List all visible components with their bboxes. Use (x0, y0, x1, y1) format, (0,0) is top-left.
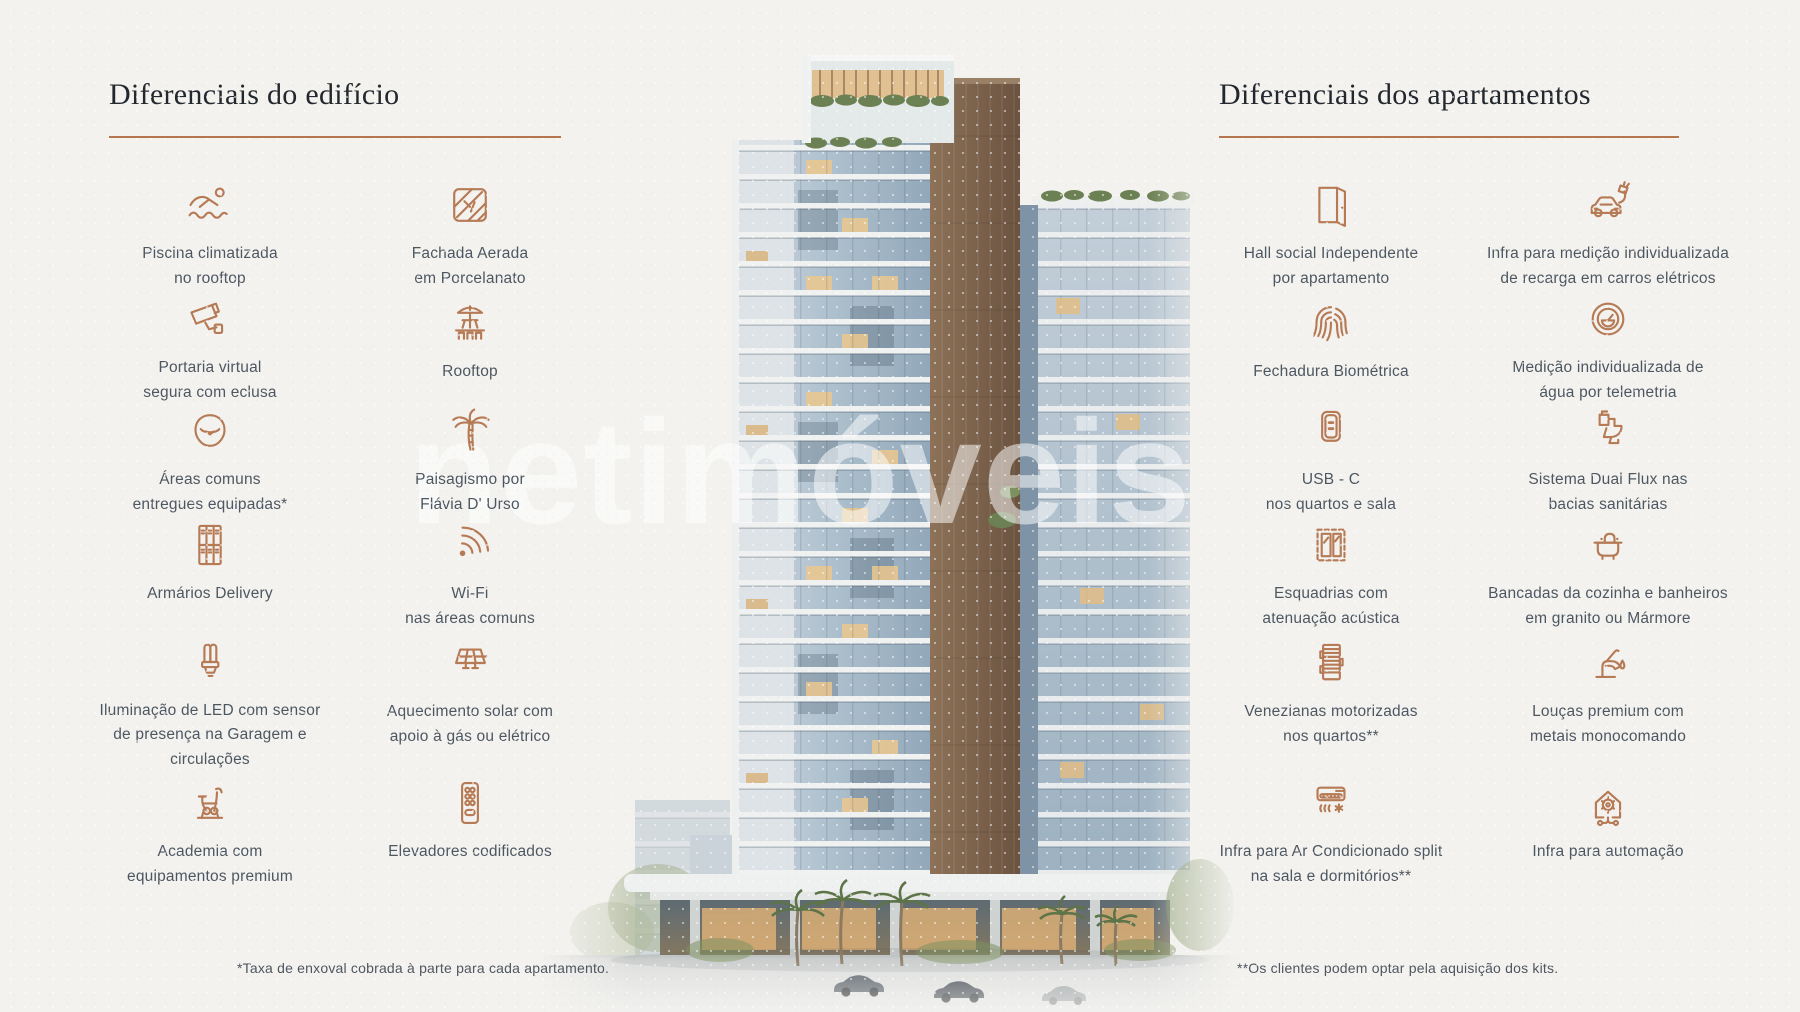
faucet-icon (1582, 633, 1634, 689)
window-frame-icon (1305, 515, 1357, 571)
feature-label: Áreas comuns entregues equipadas* (133, 468, 288, 518)
sink-icon (1582, 515, 1634, 571)
feature-item: Wi-Fi nas áreas comuns (325, 515, 615, 633)
feature-label: Academia com equipamentos premium (127, 840, 293, 890)
building-differentials-panel: Diferenciais do edifício (95, 78, 645, 138)
building-illustration (540, 0, 1240, 1012)
left-title-underline (109, 136, 561, 138)
water-meter-icon (1582, 293, 1634, 345)
feature-label: Fachada Aerada em Porcelanato (412, 242, 529, 292)
building-features-grid: Piscina climatizada no rooftop Fachada A… (95, 175, 615, 905)
feature-item: Hall social Independente por apartamento (1205, 175, 1457, 293)
feature-label: Infra para automação (1532, 840, 1683, 865)
building-render (540, 0, 1240, 1012)
exercise-bike-icon (184, 773, 236, 829)
rooftop-icon (444, 293, 496, 349)
fingerprint-icon (1305, 293, 1357, 349)
feature-item: Sistema Dual Flux nas bacias sanitárias (1457, 405, 1759, 515)
feature-item: Fachada Aerada em Porcelanato (325, 175, 615, 293)
usb-outlet-icon (1305, 405, 1357, 457)
apartment-differentials-panel: Diferenciais dos apartamentos (1205, 78, 1775, 138)
feature-label: Venezianas motorizadas nos quartos** (1244, 700, 1417, 750)
feature-item: USB - C nos quartos e sala (1205, 405, 1457, 515)
feature-item: Elevadores codificados (325, 773, 615, 905)
beanbag-icon (184, 405, 236, 457)
feature-label: Sistema Dual Flux nas bacias sanitárias (1528, 468, 1687, 518)
right-panel-title: Diferenciais dos apartamentos (1219, 78, 1775, 112)
led-bulb-icon (184, 633, 236, 688)
blinds-icon (1305, 633, 1357, 689)
feature-label: Bancadas da cozinha e banheiros em grani… (1488, 582, 1728, 632)
feature-item: Paisagismo por Flávia D' Urso (325, 405, 615, 515)
left-panel-title: Diferenciais do edifício (109, 78, 645, 112)
ev-car-icon (1582, 175, 1634, 231)
lockers-icon (184, 515, 236, 571)
open-door-icon (1305, 175, 1357, 231)
feature-item: Infra para Ar Condicionado split na sala… (1205, 773, 1457, 905)
feature-item: Infra para medição individualizada de re… (1457, 175, 1759, 293)
solar-panel-icon (444, 633, 496, 689)
feature-label: Iluminação de LED com sensor de presença… (100, 699, 321, 773)
feature-label: Armários Delivery (147, 582, 273, 607)
feature-label: Piscina climatizada no rooftop (142, 242, 278, 292)
feature-label: Paisagismo por Flávia D' Urso (415, 468, 525, 518)
cctv-icon (184, 293, 236, 345)
feature-item: Esquadrias com atenuação acústica (1205, 515, 1457, 633)
feature-label: Rooftop (442, 360, 498, 385)
feature-label: USB - C nos quartos e sala (1266, 468, 1396, 518)
feature-label: Wi-Fi nas áreas comuns (405, 582, 535, 632)
feature-item: Venezianas motorizadas nos quartos** (1205, 633, 1457, 773)
feature-item: Medição individualizada de água por tele… (1457, 293, 1759, 405)
feature-item: Rooftop (325, 293, 615, 405)
left-footnote: *Taxa de enxoval cobrada à parte para ca… (237, 960, 609, 976)
feature-item: Academia com equipamentos premium (95, 773, 325, 905)
feature-label: Infra para medição individualizada de re… (1487, 242, 1729, 292)
elevator-keypad-icon (444, 773, 496, 829)
toilet-icon (1582, 405, 1634, 457)
feature-label: Hall social Independente por apartamento (1244, 242, 1419, 292)
feature-item: Iluminação de LED com sensor de presença… (95, 633, 325, 773)
feature-item: Áreas comuns entregues equipadas* (95, 405, 325, 515)
feature-item: Bancadas da cozinha e banheiros em grani… (1457, 515, 1759, 633)
wifi-icon (444, 515, 496, 571)
feature-item: Portaria virtual segura com eclusa (95, 293, 325, 405)
feature-label: Medição individualizada de água por tele… (1512, 356, 1703, 406)
feature-label: Louças premium com metais monocomando (1530, 700, 1686, 750)
feature-label: Elevadores codificados (388, 840, 552, 865)
palm-tree-icon (444, 405, 496, 457)
feature-label: Infra para Ar Condicionado split na sala… (1220, 840, 1443, 890)
feature-label: Aquecimento solar com apoio à gás ou elé… (387, 700, 553, 750)
tiles-icon (444, 175, 496, 231)
apartment-features-grid: Hall social Independente por apartamento… (1205, 175, 1759, 905)
right-footnote: **Os clientes podem optar pela aquisição… (1237, 960, 1558, 976)
feature-label: Portaria virtual segura com eclusa (143, 356, 277, 406)
feature-item: Louças premium com metais monocomando (1457, 633, 1759, 773)
swimmer-icon (184, 175, 236, 231)
feature-item: Fechadura Biométrica (1205, 293, 1457, 405)
feature-item: Infra para automação (1457, 773, 1759, 905)
right-title-underline (1219, 136, 1679, 138)
ac-split-icon (1305, 773, 1357, 829)
feature-item: Armários Delivery (95, 515, 325, 633)
feature-label: Fechadura Biométrica (1253, 360, 1409, 385)
feature-item: Aquecimento solar com apoio à gás ou elé… (325, 633, 615, 773)
home-automation-icon (1582, 773, 1634, 829)
feature-item: Piscina climatizada no rooftop (95, 175, 325, 293)
feature-label: Esquadrias com atenuação acústica (1262, 582, 1399, 632)
